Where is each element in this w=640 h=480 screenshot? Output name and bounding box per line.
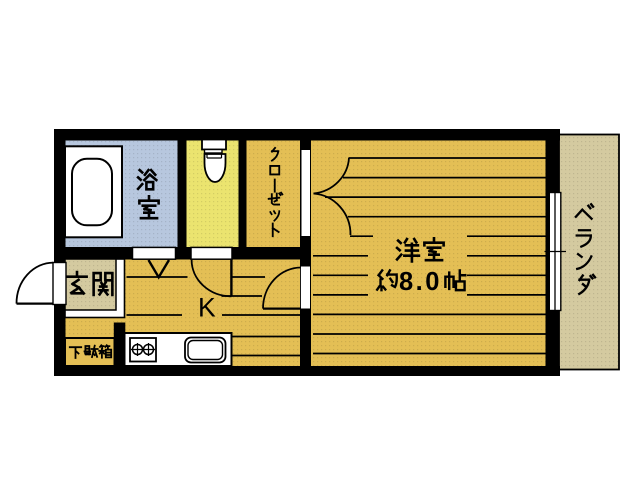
svg-text:8.0: 8.0 [399, 268, 442, 296]
svg-text:K: K [198, 293, 216, 323]
